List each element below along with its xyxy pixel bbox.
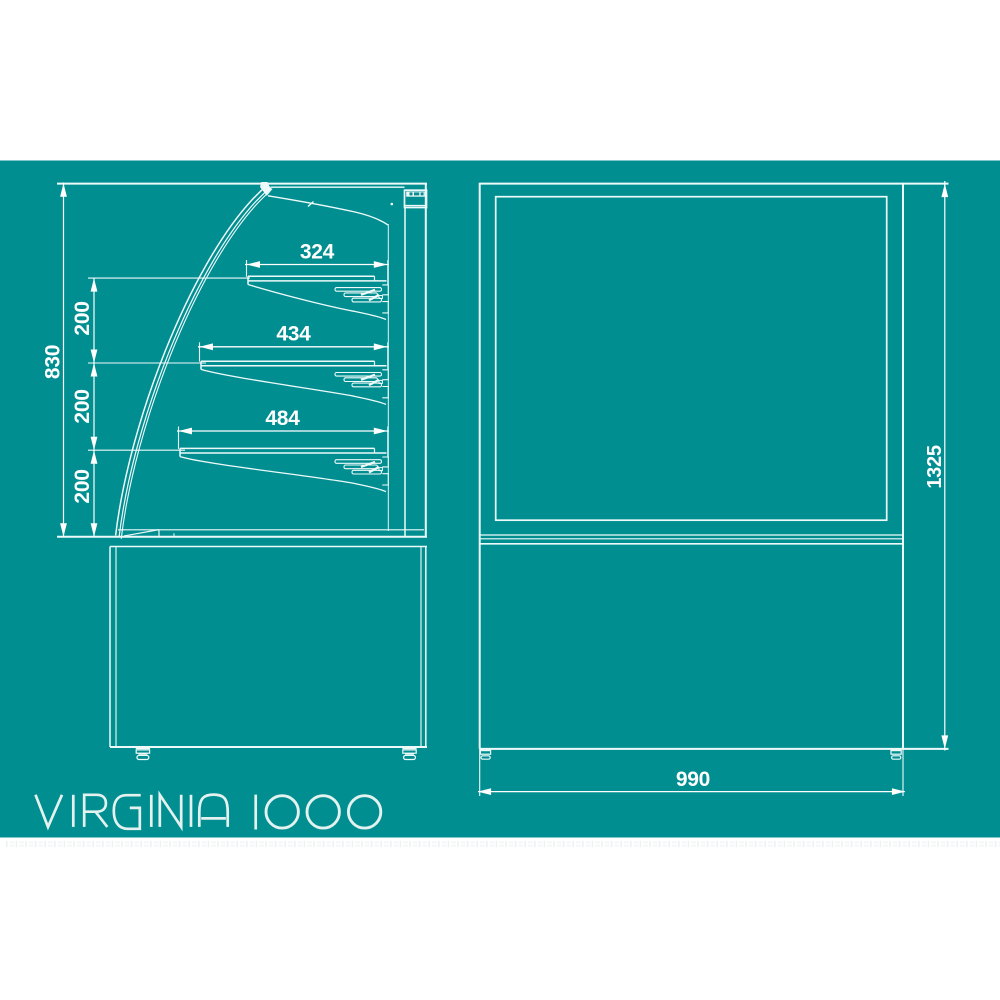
svg-text:324: 324 (300, 240, 335, 263)
svg-text:200: 200 (71, 469, 94, 503)
svg-text:200: 200 (71, 389, 94, 423)
svg-text:990: 990 (676, 768, 710, 791)
svg-text:830: 830 (42, 345, 65, 379)
svg-text:484: 484 (265, 407, 300, 430)
svg-text:200: 200 (71, 301, 94, 335)
svg-text:434: 434 (276, 323, 311, 346)
svg-text:1325: 1325 (924, 445, 946, 488)
